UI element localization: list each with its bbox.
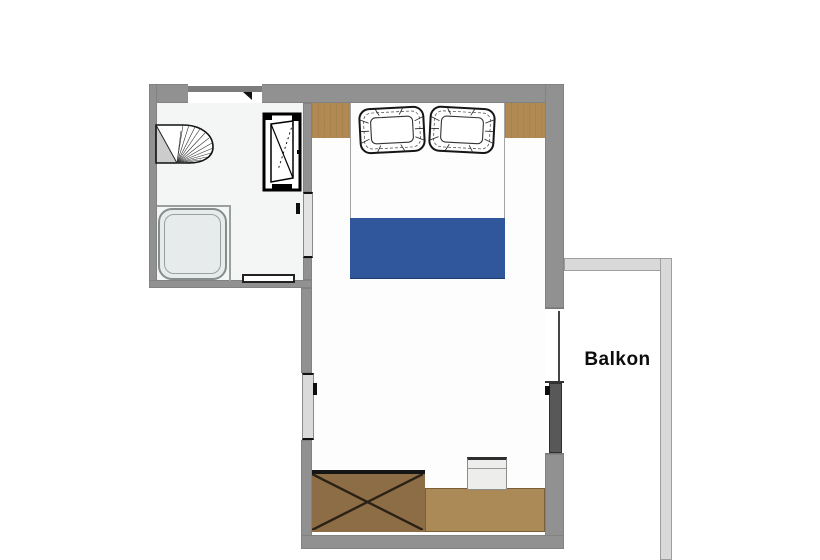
wall-left-bathroom <box>149 84 157 288</box>
door-sill <box>242 274 295 283</box>
wall-bedroom-left-lower <box>301 440 312 549</box>
bathroom-window <box>188 84 262 103</box>
wall-divider-lower <box>303 258 312 280</box>
balcony-door-handle <box>545 386 550 395</box>
bathroom-door <box>303 192 313 258</box>
chair <box>467 457 507 490</box>
balcony-floor <box>564 271 660 560</box>
wall-bedroom-left-upper <box>301 288 312 373</box>
shower-enclosure-top <box>157 205 231 207</box>
wall-bottom <box>301 535 564 549</box>
tilt-window-frame <box>262 112 302 192</box>
wardrobe <box>312 470 425 532</box>
washbasin <box>155 121 217 167</box>
bedside-cabinet-right <box>505 103 545 138</box>
shower-enclosure-side <box>229 205 231 281</box>
balcony-door-leaf <box>549 383 562 453</box>
balcony-window-glass <box>558 311 560 381</box>
shower-tray <box>158 208 227 280</box>
bathroom-door-handle <box>296 203 300 214</box>
desk <box>425 488 545 532</box>
floor-plan: Balkon <box>0 0 820 560</box>
interior-door-handle <box>313 383 317 395</box>
balcony-label: Balkon <box>575 349 660 371</box>
pillows <box>356 104 500 158</box>
wall-right-upper <box>545 84 564 308</box>
wall-divider-upper <box>303 103 312 192</box>
bathroom-window-marker <box>243 92 252 100</box>
balcony-railing-right <box>660 258 672 560</box>
blanket <box>350 218 505 279</box>
balcony-railing-top <box>564 258 672 271</box>
balcony-door <box>545 308 564 454</box>
bedside-cabinet-left <box>312 103 350 138</box>
